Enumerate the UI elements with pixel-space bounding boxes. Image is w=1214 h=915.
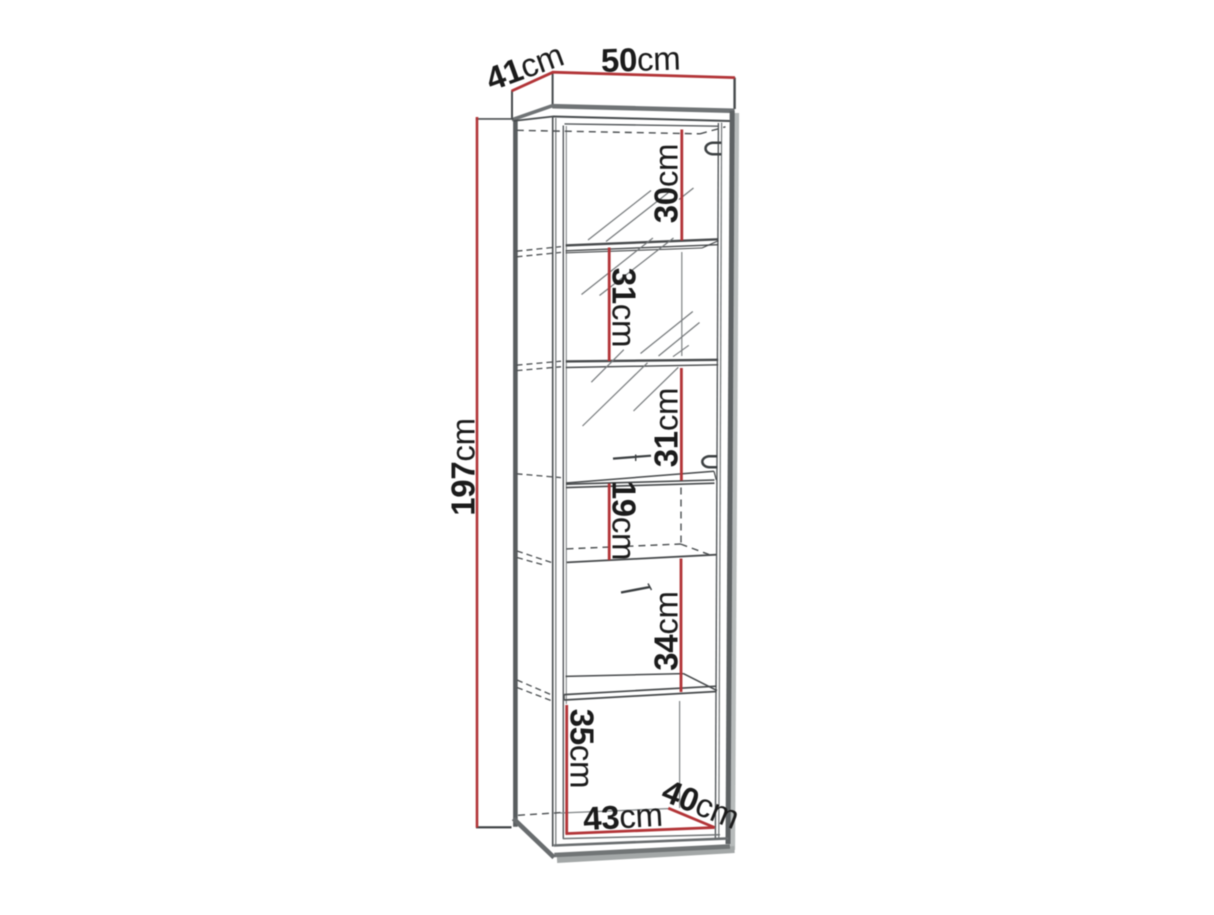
svg-text:35cm: 35cm: [564, 709, 601, 789]
svg-text:50cm: 50cm: [600, 40, 681, 79]
svg-text:197cm: 197cm: [445, 418, 482, 516]
svg-text:31cm: 31cm: [606, 268, 643, 348]
svg-text:43cm: 43cm: [582, 796, 663, 837]
svg-text:30cm: 30cm: [648, 144, 685, 224]
svg-text:34cm: 34cm: [648, 591, 685, 671]
svg-text:19cm: 19cm: [606, 481, 643, 561]
svg-text:31cm: 31cm: [648, 388, 685, 468]
